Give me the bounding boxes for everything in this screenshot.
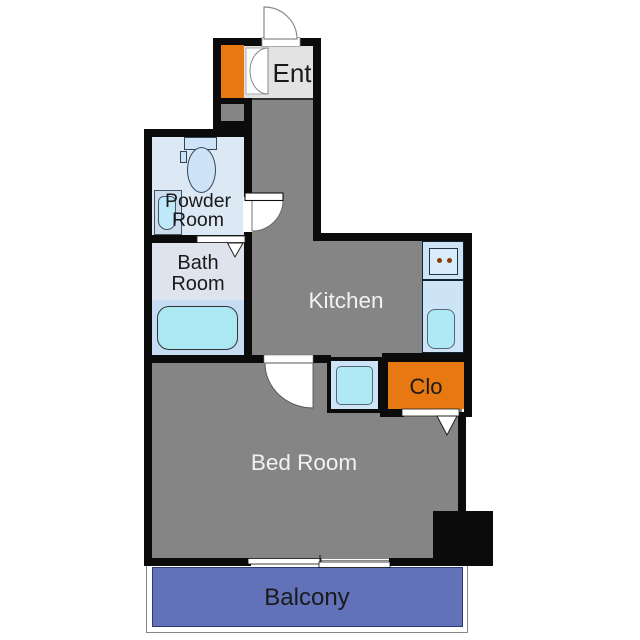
- wall-kitchen-top: [313, 233, 472, 241]
- wall-powder-top: [144, 129, 252, 137]
- entrance-door-swing: [264, 7, 297, 39]
- corridor-niche-floor: [221, 104, 244, 121]
- closet-label-text: Clo: [388, 374, 464, 400]
- corridor-floor: [252, 100, 313, 233]
- kitchen-label-text: Kitchen: [296, 288, 396, 314]
- bed-room-label-text: Bed Room: [244, 450, 364, 476]
- wall-bedroom-top-left: [144, 355, 265, 363]
- bath-room-label-line1: Bath: [152, 253, 244, 274]
- stove-burner-left: [437, 258, 442, 263]
- bath-room-label-line2: Room: [152, 274, 244, 295]
- bathtub: [157, 306, 238, 350]
- closet-label: Clo: [388, 374, 464, 400]
- floor-plan: Ent Powder Room Bath Room Kitchen Clo Be…: [0, 0, 640, 640]
- toilet-bowl: [187, 147, 216, 193]
- bath-room-label: Bath Room: [152, 253, 244, 295]
- stove-burner-right: [447, 258, 452, 263]
- wall-under-shoe-cabinet: [221, 98, 244, 104]
- washing-machine-pan: [336, 366, 373, 405]
- ent-label-text: Ent: [262, 58, 322, 89]
- shoe-cabinet: [221, 45, 244, 98]
- wall-bedroom-bottom-left: [144, 558, 251, 566]
- bed-room-label: Bed Room: [244, 450, 364, 476]
- kitchen-sink: [427, 309, 455, 349]
- stove: [429, 248, 458, 275]
- wall-closet-top: [382, 353, 472, 362]
- wall-kitchen-right: [464, 233, 472, 417]
- wall-bedroom-right: [458, 412, 466, 517]
- wall-outer-left: [144, 129, 152, 565]
- kitchen-label: Kitchen: [296, 288, 396, 314]
- wall-powder-bottom: [144, 235, 252, 243]
- pillar: [433, 511, 493, 566]
- balcony-label: Balcony: [237, 584, 377, 612]
- wall-ent-left: [213, 38, 221, 130]
- powder-room-label-line2: Room: [152, 211, 244, 230]
- powder-room-label: Powder Room: [152, 192, 244, 229]
- wall-bedroom-bottom-right: [389, 558, 435, 566]
- powder-room-label-line1: Powder: [152, 192, 244, 211]
- wall-closet-bottom-stub: [380, 408, 404, 417]
- ent-label: Ent: [262, 58, 322, 89]
- kitchen-counter-divider: [422, 279, 464, 281]
- toilet-flush-handle: [180, 151, 187, 163]
- wall-powder-right: [244, 98, 252, 363]
- balcony-label-text: Balcony: [237, 584, 377, 612]
